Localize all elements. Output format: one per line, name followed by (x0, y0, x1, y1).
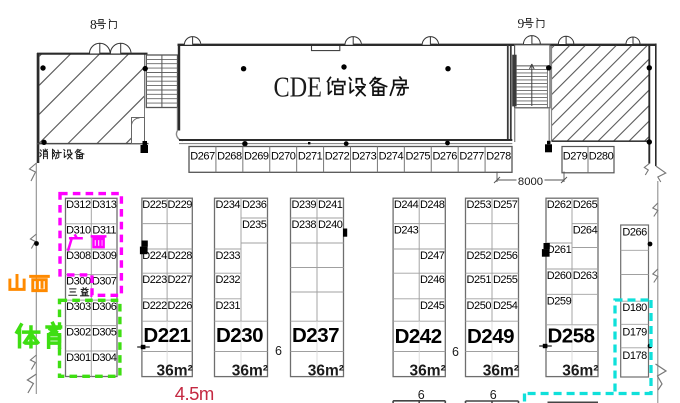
svg-text:D304: D304 (92, 352, 117, 364)
svg-text:D274: D274 (379, 150, 404, 162)
svg-text:D264: D264 (573, 225, 598, 237)
svg-text:D305: D305 (92, 326, 117, 338)
svg-text:D243: D243 (394, 225, 419, 237)
svg-text:D231: D231 (216, 300, 241, 312)
svg-text:D255: D255 (493, 274, 518, 286)
svg-text:D303: D303 (66, 301, 91, 313)
svg-text:D225: D225 (142, 199, 167, 211)
svg-text:D228: D228 (167, 250, 192, 262)
svg-text:D276: D276 (432, 150, 457, 162)
svg-text:D278: D278 (486, 150, 511, 162)
svg-text:D258: D258 (548, 324, 595, 347)
svg-text:D302: D302 (66, 326, 91, 338)
svg-text:D254: D254 (493, 300, 518, 312)
svg-text:D275: D275 (406, 150, 431, 162)
svg-text:D280: D280 (589, 150, 614, 162)
svg-text:D306: D306 (92, 301, 117, 313)
svg-text:D223: D223 (142, 274, 167, 286)
svg-text:D234: D234 (216, 199, 241, 211)
svg-text:D301: D301 (66, 352, 91, 364)
svg-text:D312: D312 (66, 199, 91, 211)
svg-text:D250: D250 (467, 300, 492, 312)
svg-text:D277: D277 (459, 150, 484, 162)
svg-text:CDE: CDE (274, 73, 323, 104)
svg-text:D256: D256 (493, 250, 518, 262)
svg-text:D222: D222 (142, 300, 167, 312)
svg-text:D246: D246 (420, 274, 445, 286)
svg-text:D310: D310 (66, 225, 91, 237)
svg-text:D251: D251 (467, 274, 492, 286)
svg-text:D229: D229 (167, 199, 192, 211)
svg-text:9: 9 (518, 16, 525, 31)
svg-text:D308: D308 (66, 250, 91, 262)
svg-text:8000: 8000 (518, 176, 543, 188)
svg-text:8: 8 (90, 17, 97, 32)
svg-text:D257: D257 (493, 199, 518, 211)
svg-text:D248: D248 (420, 199, 445, 211)
svg-text:D271: D271 (298, 150, 323, 162)
svg-text:6: 6 (418, 388, 425, 402)
svg-text:D313: D313 (92, 199, 117, 211)
svg-text:D270: D270 (271, 150, 296, 162)
svg-text:D259: D259 (547, 295, 572, 307)
svg-text:D233: D233 (216, 250, 241, 262)
svg-text:D263: D263 (573, 270, 598, 282)
svg-text:D227: D227 (167, 274, 192, 286)
svg-text:D267: D267 (190, 150, 215, 162)
svg-text:D242: D242 (395, 325, 442, 348)
svg-text:D272: D272 (325, 150, 350, 162)
svg-text:D244: D244 (394, 199, 419, 211)
svg-text:D239: D239 (292, 199, 317, 211)
svg-text:D253: D253 (467, 199, 492, 211)
svg-text:36m²: 36m² (483, 362, 519, 379)
svg-text:D178: D178 (622, 350, 647, 362)
svg-text:D179: D179 (622, 326, 647, 338)
svg-text:D268: D268 (217, 150, 242, 162)
svg-text:D180: D180 (622, 302, 647, 314)
svg-text:36m²: 36m² (410, 362, 446, 379)
svg-text:D309: D309 (92, 250, 117, 262)
svg-text:D300: D300 (66, 276, 91, 288)
svg-text:6: 6 (490, 388, 497, 402)
svg-text:36m²: 36m² (157, 362, 193, 379)
svg-text:D265: D265 (573, 199, 598, 211)
svg-text:6: 6 (452, 345, 459, 359)
svg-text:D269: D269 (244, 150, 269, 162)
svg-text:D307: D307 (92, 276, 117, 288)
svg-text:4.5m: 4.5m (175, 383, 215, 403)
svg-text:36m²: 36m² (308, 362, 344, 379)
svg-text:D262: D262 (547, 199, 572, 211)
svg-text:D273: D273 (352, 150, 377, 162)
svg-text:D230: D230 (216, 324, 263, 347)
svg-text:6: 6 (275, 344, 282, 358)
svg-text:D235: D235 (242, 219, 267, 231)
svg-text:D279: D279 (563, 150, 588, 162)
svg-text:D237: D237 (292, 324, 339, 347)
svg-text:D226: D226 (167, 300, 192, 312)
svg-text:D238: D238 (292, 219, 317, 231)
svg-text:D260: D260 (547, 270, 572, 282)
svg-text:D240: D240 (318, 219, 343, 231)
svg-text:D261: D261 (547, 244, 572, 256)
svg-text:D266: D266 (622, 226, 647, 238)
svg-text:D311: D311 (92, 225, 116, 237)
svg-text:D247: D247 (420, 250, 445, 262)
svg-text:D252: D252 (467, 250, 492, 262)
svg-text:36m²: 36m² (232, 362, 268, 379)
svg-text:D241: D241 (318, 199, 343, 211)
svg-text:D236: D236 (242, 199, 267, 211)
svg-text:D221: D221 (143, 324, 190, 347)
svg-text:D245: D245 (420, 300, 445, 312)
svg-text:D249: D249 (467, 325, 514, 348)
svg-text:36m²: 36m² (562, 362, 598, 379)
svg-text:D232: D232 (216, 274, 241, 286)
